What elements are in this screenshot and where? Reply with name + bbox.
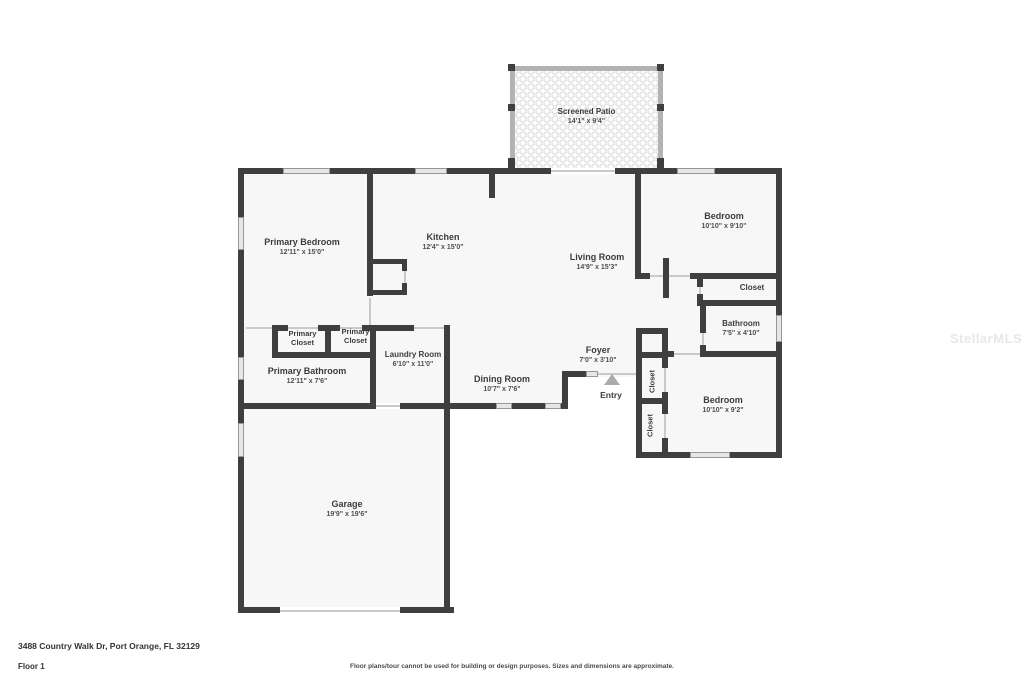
patio-wall	[510, 66, 663, 71]
patio-post	[508, 158, 515, 168]
patio-post	[657, 64, 664, 71]
room-label-garage: Garage 19'9" x 19'6"	[297, 499, 397, 518]
wall-segment	[376, 325, 414, 331]
room-dims: 10'10" x 9'2"	[673, 407, 773, 414]
door-opening	[664, 368, 666, 392]
wall-segment	[662, 404, 668, 414]
wall-segment	[568, 377, 636, 452]
room-name: Kitchen	[393, 232, 493, 243]
window	[496, 403, 512, 409]
window	[586, 371, 598, 377]
room-label-primary-bathroom: Primary Bathroom 12'11" x 7'6"	[237, 366, 377, 385]
room-label-primary-closet-left: Primary Closet	[280, 329, 325, 347]
room-dims: 6'10" x 11'0"	[363, 361, 463, 368]
room-name: Garage	[297, 499, 397, 510]
window	[415, 168, 447, 174]
window	[690, 452, 730, 458]
room-dims: 10'7" x 7'6"	[452, 386, 552, 393]
wall-segment	[697, 300, 782, 306]
wall-segment	[444, 325, 450, 613]
room-label-laundry-room: Laundry Room 6'10" x 11'0"	[363, 350, 463, 368]
wall-segment	[325, 331, 331, 352]
patio-post	[657, 158, 664, 168]
room-name: Bedroom	[674, 211, 774, 222]
door-opening	[246, 327, 272, 329]
wall-segment	[706, 351, 782, 357]
room-name: Closet	[646, 396, 655, 456]
room-name: Foyer	[568, 345, 628, 356]
wall-segment	[700, 345, 706, 357]
window	[545, 403, 561, 409]
room-label-bedroom-bottom: Bedroom 10'10" x 9'2"	[673, 395, 773, 414]
room-label-primary-bedroom: Primary Bedroom 12'11" x 15'0"	[232, 237, 372, 256]
door-opening	[650, 275, 690, 277]
room-label-bathroom: Bathroom 7'5" x 4'10"	[701, 319, 781, 337]
room-dims: 7'5" x 4'10"	[701, 330, 781, 337]
wall-segment	[562, 371, 586, 377]
room-label-kitchen: Kitchen 12'4" x 15'0"	[393, 232, 493, 251]
room-dims: 10'10" x 9'10"	[674, 223, 774, 230]
floor-plan: Screened Patio 14'1" x 9'4" Primary Bedr…	[0, 0, 1024, 682]
door-opening	[280, 610, 400, 612]
window	[677, 168, 715, 174]
wall-segment	[641, 273, 650, 279]
room-name: Laundry Room	[363, 350, 463, 360]
room-label-primary-closet-right: Primary Closet	[333, 327, 378, 345]
room-dims: 19'9" x 19'6"	[297, 511, 397, 518]
room-dims: 14'9" x 15'3"	[547, 264, 647, 271]
door-opening	[376, 405, 400, 407]
wall-segment	[662, 351, 674, 357]
door-opening	[664, 414, 666, 438]
wall-segment	[400, 403, 444, 409]
door-opening	[404, 270, 406, 284]
room-label-bedroom-top: Bedroom 10'10" x 9'10"	[674, 211, 774, 230]
room-name: Dining Room	[452, 374, 552, 385]
room-name: Screened Patio	[510, 107, 663, 117]
wall-segment	[272, 352, 376, 358]
wall-segment	[662, 358, 668, 368]
room-dims: 7'0" x 3'10"	[568, 357, 628, 364]
watermark: StellarMLS	[950, 331, 1022, 346]
room-name: Primary Closet	[280, 329, 325, 347]
room-label-living-room: Living Room 14'9" x 15'3"	[547, 252, 647, 271]
room-name: Primary Bathroom	[237, 366, 377, 377]
room-name: Primary Closet	[333, 327, 378, 345]
wall-segment	[562, 377, 568, 409]
room-label-closet-hall-lower: Closet	[646, 396, 655, 456]
entry-label: Entry	[581, 390, 641, 400]
wall-segment	[367, 174, 373, 296]
room-label-foyer: Foyer 7'0" x 3'10"	[568, 345, 628, 364]
room-name: Bedroom	[673, 395, 773, 406]
wall-segment	[662, 438, 668, 452]
wall-segment	[663, 258, 669, 298]
room-label-screened-patio: Screened Patio 14'1" x 9'4"	[510, 107, 663, 125]
entry-arrow-icon	[604, 374, 620, 385]
door-opening	[369, 298, 371, 325]
wall-segment	[402, 259, 407, 271]
wall-segment	[690, 273, 782, 279]
room-name: Living Room	[547, 252, 647, 263]
address-text: 3488 Country Walk Dr, Port Orange, FL 32…	[18, 641, 200, 651]
room-name: Entry	[581, 390, 641, 400]
room-dims: 12'11" x 15'0"	[232, 249, 372, 256]
window	[283, 168, 330, 174]
room-label-dining-room: Dining Room 10'7" x 7'6"	[452, 374, 552, 393]
wall-segment	[776, 168, 782, 458]
room-name: Closet	[712, 283, 792, 293]
room-label-closet-top-right: Closet	[712, 283, 792, 293]
door-opening	[699, 286, 701, 294]
room-name: Primary Bedroom	[232, 237, 372, 248]
room-name: Bathroom	[701, 319, 781, 329]
room-dims: 12'11" x 7'6"	[237, 378, 377, 385]
disclaimer-text: Floor plans/tour cannot be used for buil…	[0, 663, 1024, 670]
wall-segment	[402, 283, 407, 295]
window	[238, 423, 244, 457]
door-opening	[551, 170, 615, 172]
wall-segment	[489, 168, 495, 198]
wall-segment	[244, 403, 376, 409]
patio-post	[508, 64, 515, 71]
door-opening	[414, 327, 444, 329]
wall-segment	[697, 279, 703, 287]
room-dims: 14'1" x 9'4"	[510, 118, 663, 125]
room-dims: 12'4" x 15'0"	[393, 244, 493, 251]
